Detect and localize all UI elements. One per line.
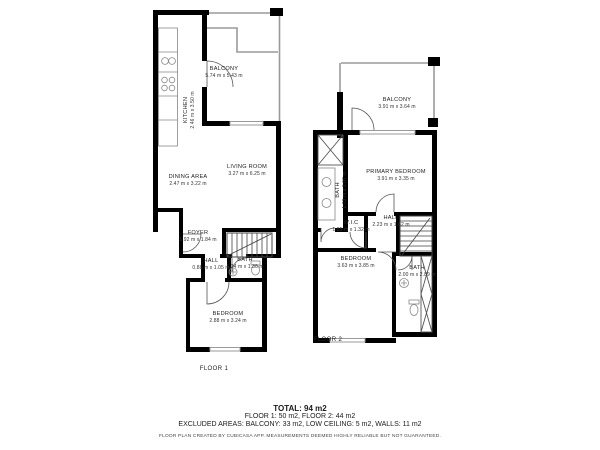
room-label-kitchen: KITCHEN 2.46 m x 3.50 m — [183, 91, 197, 128]
room-label-balcony-f1: BALCONY 5.74 m x 5.43 m — [205, 66, 242, 80]
floor1-caption: FLOOR 1 — [200, 366, 228, 372]
room-dims: 3.91 m x 3.35 m — [366, 176, 426, 183]
floorplan-graphics — [0, 0, 600, 450]
room-name: KITCHEN — [183, 91, 190, 128]
room-name: BEDROOM — [337, 256, 374, 263]
room-label-primary-bedroom: PRIMARY BEDROOM 3.91 m x 3.35 m — [366, 169, 426, 183]
kitchen-fixtures — [159, 28, 178, 146]
bath2-top-fixtures — [318, 168, 335, 220]
room-name: BATH — [398, 265, 435, 272]
floor-plan-page: BALCONY 5.74 m x 5.43 m KITCHEN 2.46 m x… — [0, 0, 600, 450]
room-dims: 1.73 m x 3.07 m — [342, 171, 349, 208]
summary-excluded-areas: EXCLUDED AREAS: BALCONY: 33 m2, LOW CEIL… — [0, 421, 600, 428]
summary-floor-areas: FLOOR 1: 50 m2, FLOOR 2: 44 m2 — [0, 413, 600, 420]
room-dims: 2.00 m x 2.89 m — [398, 272, 435, 279]
room-dims: 3.27 m x 6.25 m — [227, 171, 267, 178]
room-label-dining-area: DINING AREA 2.47 m x 3.22 m — [169, 174, 208, 188]
room-dims: 0.88 m x 1.05 m — [192, 265, 229, 272]
room-dims: 1.92 m x 1.84 m — [179, 237, 216, 244]
room-name: BATH — [335, 171, 342, 208]
room-name: HALL — [192, 258, 229, 265]
floor2-caption: FLOOR 2 — [314, 337, 342, 343]
room-label-balcony-f2: BALCONY 3.91 m x 3.64 m — [378, 97, 415, 111]
room-name: BATH — [226, 257, 263, 264]
summary-total: TOTAL: 94 m2 — [0, 404, 600, 413]
room-dims: 1.85 m x 1.32 m — [332, 227, 369, 234]
room-name: PRIMARY BEDROOM — [366, 169, 426, 176]
room-label-bedroom-f2: BEDROOM 3.63 m x 3.85 m — [337, 256, 374, 270]
room-dims: 3.91 m x 3.64 m — [378, 104, 415, 111]
room-dims: 2.46 m x 3.50 m — [190, 91, 197, 128]
floor2-balcony-rails — [340, 63, 434, 120]
room-name: DINING AREA — [169, 174, 208, 181]
floor1-stairs-icon — [227, 233, 272, 257]
room-name: BEDROOM — [209, 311, 246, 318]
room-dims: 3.63 m x 3.85 m — [337, 263, 374, 270]
bath2-fixtures — [400, 279, 420, 316]
room-dims: 2.47 m x 3.22 m — [169, 181, 208, 188]
room-name: LIVING ROOM — [227, 164, 267, 171]
room-label-living-room: LIVING ROOM 3.27 m x 6.25 m — [227, 164, 267, 178]
room-name: FOYER — [179, 230, 216, 237]
room-dims: 2.88 m x 3.24 m — [209, 318, 246, 325]
room-label-bath-f1: BATH 1.24 m x 1.36 m — [226, 257, 263, 271]
room-name: W.I.C — [332, 220, 369, 227]
room-label-bedroom-f1: BEDROOM 2.88 m x 3.24 m — [209, 311, 246, 325]
room-label-wic: W.I.C 1.85 m x 1.32 m — [332, 220, 369, 234]
room-dims: 5.74 m x 5.43 m — [205, 73, 242, 80]
room-label-bath-f2: BATH 2.00 m x 2.89 m — [398, 265, 435, 279]
room-dims: 2.23 m x 1.82 m — [372, 222, 409, 229]
room-name: HALL — [372, 215, 409, 222]
room-label-hall-f2: HALL 2.23 m x 1.82 m — [372, 215, 409, 229]
room-name: BALCONY — [205, 66, 242, 73]
room-label-foyer: FOYER 1.92 m x 1.84 m — [179, 230, 216, 244]
room-label-hall-f1: HALL 0.88 m x 1.05 m — [192, 258, 229, 272]
summary-disclaimer: FLOOR PLAN CREATED BY CUBICASA APP. MEAS… — [0, 434, 600, 439]
room-dims: 1.24 m x 1.36 m — [226, 264, 263, 271]
room-label-bath-top-f2: BATH 1.73 m x 3.07 m — [335, 171, 349, 208]
room-name: BALCONY — [378, 97, 415, 104]
hatch-low-ceiling-top — [318, 135, 343, 165]
